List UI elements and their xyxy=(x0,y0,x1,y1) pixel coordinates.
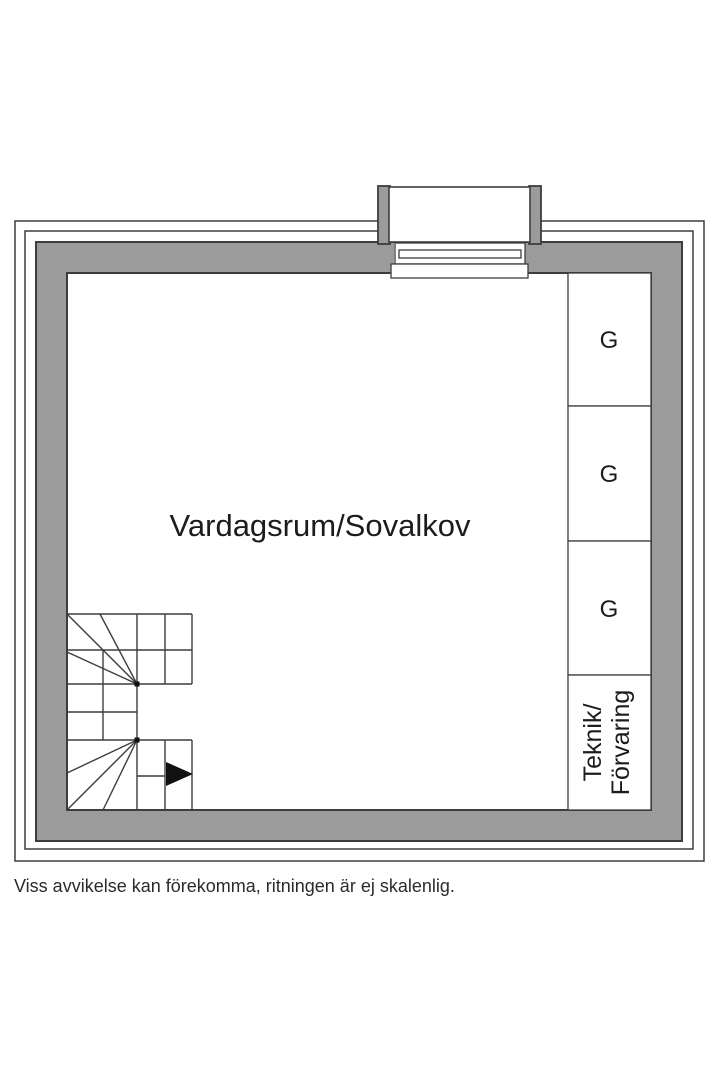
room-label: Vardagsrum/Sovalkov xyxy=(170,508,471,543)
dormer-body xyxy=(389,187,530,242)
stair-winder-line xyxy=(100,614,137,684)
utility-room-label-line-1: Teknik/ xyxy=(579,704,607,782)
dormer xyxy=(378,186,541,278)
disclaimer-text: Viss avvikelse kan förekomma, ritningen … xyxy=(14,876,455,896)
utility-room-label-line-2: Förvaring xyxy=(607,690,635,796)
stair-newel-dot xyxy=(135,738,140,743)
closet-3-label: G xyxy=(600,596,619,623)
stair-direction-arrow-icon xyxy=(166,762,193,786)
stair-winder-line xyxy=(67,614,137,684)
closet-2-label: G xyxy=(600,461,619,488)
floorplan-page: G G G Teknik/ Förvaring Vardag xyxy=(0,0,720,1080)
stair-winder-line xyxy=(67,740,137,810)
closet-1-label: G xyxy=(600,327,619,354)
closet-column: G G G Teknik/ Förvaring xyxy=(568,273,651,810)
stair-winder-line xyxy=(103,740,137,810)
window-sill xyxy=(391,264,528,278)
staircase xyxy=(67,614,193,810)
stair-winder-line xyxy=(67,740,137,773)
window-glazing xyxy=(399,250,521,258)
stair-newel-dot xyxy=(135,682,140,687)
floorplan-drawing: G G G Teknik/ Förvaring Vardag xyxy=(0,0,720,1080)
stair-winder-line xyxy=(67,652,137,684)
